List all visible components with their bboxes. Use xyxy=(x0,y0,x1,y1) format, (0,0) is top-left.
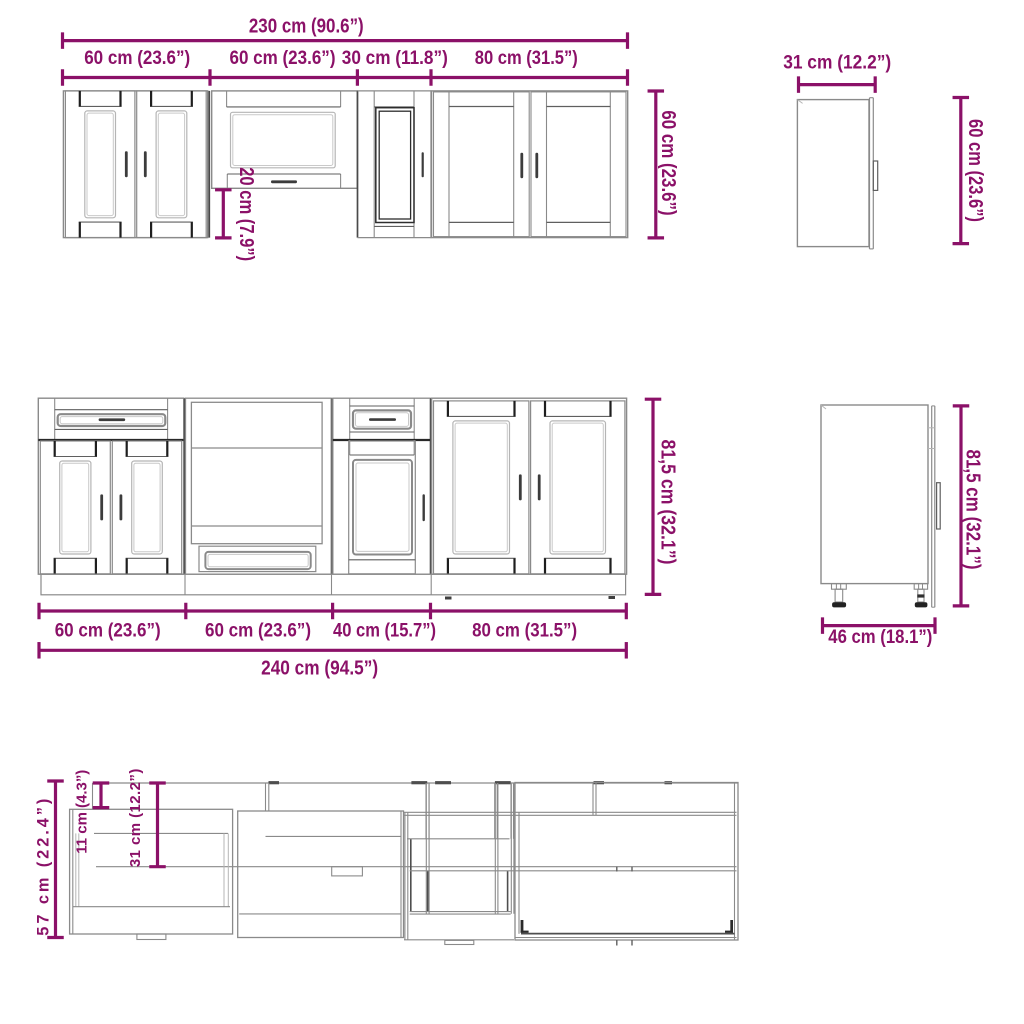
svg-text:57 cm (22.4”): 57 cm (22.4”) xyxy=(35,799,53,936)
svg-text:240 cm (94.5”): 240 cm (94.5”) xyxy=(261,657,378,680)
svg-text:80 cm (31.5”): 80 cm (31.5”) xyxy=(475,47,578,69)
svg-text:60 cm (23.6”): 60 cm (23.6”) xyxy=(84,47,190,69)
svg-text:31 cm (12.2”): 31 cm (12.2”) xyxy=(783,52,891,74)
svg-text:60 cm (23.6”): 60 cm (23.6”) xyxy=(55,619,161,641)
svg-text:40 cm (15.7”): 40 cm (15.7”) xyxy=(333,619,436,641)
svg-text:20 cm (7.9”): 20 cm (7.9”) xyxy=(235,167,258,261)
svg-text:60 cm (23.6”): 60 cm (23.6”) xyxy=(230,47,336,69)
svg-text:30 cm (11.8”): 30 cm (11.8”) xyxy=(342,47,448,69)
svg-text:60 cm (23.6”): 60 cm (23.6”) xyxy=(205,619,311,641)
svg-text:81,5 cm (32.1”): 81,5 cm (32.1”) xyxy=(961,450,984,570)
svg-text:60 cm (23.6”): 60 cm (23.6”) xyxy=(657,110,680,215)
svg-text:11 cm (4.3”): 11 cm (4.3”) xyxy=(74,770,91,854)
svg-text:60 cm (23.6”): 60 cm (23.6”) xyxy=(964,119,987,222)
svg-text:80 cm (31.5”): 80 cm (31.5”) xyxy=(472,619,577,641)
svg-text:31 cm (12.2”): 31 cm (12.2”) xyxy=(127,769,144,868)
svg-text:230 cm (90.6”): 230 cm (90.6”) xyxy=(249,14,364,37)
svg-text:81,5 cm (32.1”): 81,5 cm (32.1”) xyxy=(656,440,679,565)
svg-text:46 cm (18.1”): 46 cm (18.1”) xyxy=(828,626,932,648)
